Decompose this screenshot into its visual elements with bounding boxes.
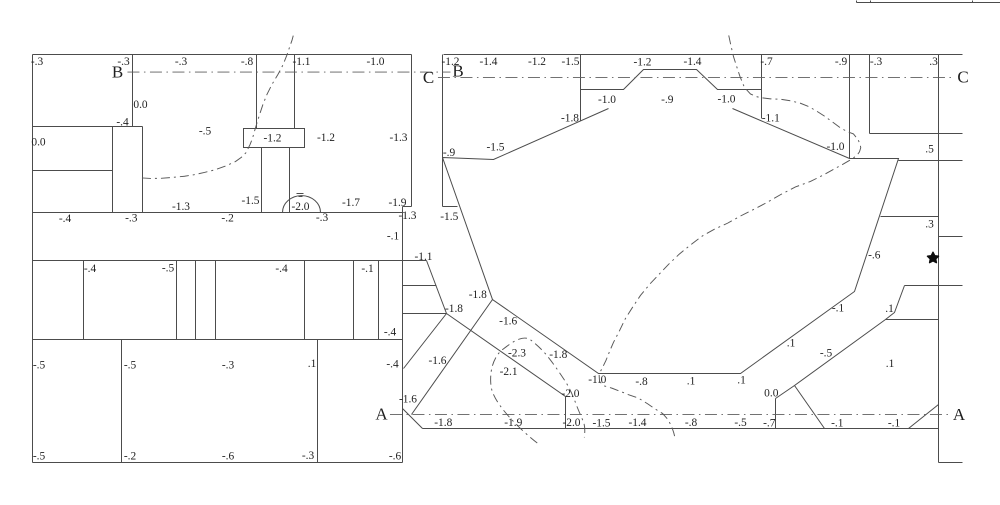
svg-text:-1.0: -1.0 (366, 56, 384, 68)
svg-text:-.3: -.3 (125, 212, 138, 224)
svg-text:-.4: -.4 (384, 327, 397, 339)
svg-text:.1: .1 (885, 303, 894, 315)
svg-text:-.4: -.4 (84, 263, 97, 275)
svg-text:-.7: -.7 (760, 56, 773, 68)
svg-text:-2.1: -2.1 (500, 366, 518, 378)
svg-text:-1.4: -1.4 (628, 417, 646, 429)
svg-text:.1: .1 (687, 376, 696, 388)
svg-text:-.1: -.1 (361, 263, 374, 275)
svg-text:-1.2: -1.2 (528, 56, 546, 68)
svg-text:-.5: -.5 (734, 417, 747, 429)
svg-text:-.1: -.1 (387, 231, 400, 243)
svg-text:-.3: -.3 (117, 56, 130, 68)
svg-text:-1.3: -1.3 (389, 132, 407, 144)
svg-text:-1.2: -1.2 (317, 132, 335, 144)
svg-text:-1.5: -1.5 (561, 56, 579, 68)
svg-text:-1.2: -1.2 (263, 133, 281, 145)
svg-text:-.3: -.3 (222, 360, 235, 372)
svg-text:-1.7: -1.7 (342, 197, 360, 209)
svg-text:-.3: -.3 (316, 212, 329, 224)
svg-text:-.2: -.2 (221, 212, 234, 224)
svg-text:.5: .5 (925, 144, 934, 156)
svg-text:-2.3: -2.3 (508, 347, 526, 359)
svg-text:-.5: -.5 (124, 360, 137, 372)
svg-text:-1.0: -1.0 (598, 94, 616, 106)
svg-text:-1.1: -1.1 (762, 112, 780, 124)
svg-text:-2.0: -2.0 (291, 201, 309, 213)
svg-text:-1.6: -1.6 (499, 316, 517, 328)
svg-text:-1.0: -1.0 (826, 141, 844, 153)
svg-text:-1.0: -1.0 (588, 374, 606, 386)
svg-text:-.1: -.1 (888, 417, 901, 429)
svg-text:-.3: -.3 (31, 56, 44, 68)
svg-text:.1: .1 (886, 358, 895, 370)
svg-text:0.0: 0.0 (133, 99, 148, 111)
svg-text:-1.9: -1.9 (388, 197, 406, 209)
svg-text:-1.3: -1.3 (172, 201, 190, 213)
svg-text:-.5: -.5 (33, 451, 46, 463)
svg-text:-1.1: -1.1 (292, 56, 310, 68)
svg-text:-1.2: -1.2 (441, 56, 459, 68)
svg-text:C: C (423, 68, 434, 87)
svg-text:.3: .3 (929, 56, 938, 68)
svg-text:.1: .1 (787, 338, 796, 350)
svg-text:-1.2: -1.2 (633, 57, 651, 69)
svg-text:C: C (957, 67, 968, 86)
svg-text:.1: .1 (308, 358, 317, 370)
svg-text:-.3: -.3 (175, 56, 188, 68)
svg-text:-2.0: -2.0 (561, 388, 579, 400)
svg-text:-.4: -.4 (59, 213, 72, 225)
svg-text:-.3: -.3 (870, 56, 883, 68)
svg-text:-1.5: -1.5 (592, 417, 610, 429)
svg-text:-.7: -.7 (763, 418, 776, 430)
svg-text:A: A (375, 404, 388, 423)
svg-text:-.9: -.9 (443, 147, 456, 159)
svg-text:-1.6: -1.6 (399, 394, 417, 406)
svg-text:.1: .1 (737, 375, 746, 387)
svg-text:-.8: -.8 (685, 417, 698, 429)
svg-text:-1.8: -1.8 (434, 417, 452, 429)
svg-text:-1.3: -1.3 (398, 210, 416, 222)
svg-text:.3: .3 (925, 218, 934, 230)
svg-text:-.9: -.9 (835, 56, 848, 68)
svg-text:-1.8: -1.8 (469, 289, 487, 301)
svg-text:-.4: -.4 (275, 263, 288, 275)
svg-text:-.4: -.4 (386, 358, 399, 370)
svg-text:-1.8: -1.8 (561, 112, 579, 124)
svg-text:-.1: -.1 (832, 303, 845, 315)
svg-text:-1.8: -1.8 (549, 349, 567, 361)
svg-text:-2.0: -2.0 (562, 417, 580, 429)
svg-text:-.8: -.8 (635, 376, 648, 388)
svg-text:-.1: -.1 (831, 418, 844, 430)
svg-text:-1.1: -1.1 (414, 251, 432, 263)
svg-text:-.6: -.6 (222, 451, 235, 463)
svg-text:-.3: -.3 (302, 450, 315, 462)
svg-text:-1.5: -1.5 (486, 142, 504, 154)
svg-text:-.6: -.6 (868, 249, 881, 261)
svg-text:-1.4: -1.4 (479, 56, 497, 68)
svg-text:0.0: 0.0 (764, 387, 779, 399)
svg-text:-.5: -.5 (199, 126, 212, 138)
svg-text:A: A (953, 405, 966, 424)
svg-text:-1.9: -1.9 (504, 417, 522, 429)
svg-text:-1.4: -1.4 (683, 56, 701, 68)
svg-text:-1.8: -1.8 (445, 303, 463, 315)
svg-text:-.5: -.5 (33, 360, 46, 372)
svg-text:-1.5: -1.5 (241, 195, 259, 207)
svg-text:-.2: -.2 (124, 451, 137, 463)
svg-text:-.5: -.5 (820, 348, 833, 360)
svg-text:-.6: -.6 (389, 451, 402, 463)
svg-text:-1.5: -1.5 (440, 211, 458, 223)
svg-text:-1.6: -1.6 (428, 355, 446, 367)
svg-text:-.5: -.5 (162, 263, 175, 275)
svg-text:-1.0: -1.0 (717, 94, 735, 106)
svg-text:-.8: -.8 (241, 56, 254, 68)
svg-text:-.4: -.4 (116, 116, 129, 128)
svg-text:0.0: 0.0 (31, 136, 46, 148)
svg-text:-.9: -.9 (661, 94, 674, 106)
